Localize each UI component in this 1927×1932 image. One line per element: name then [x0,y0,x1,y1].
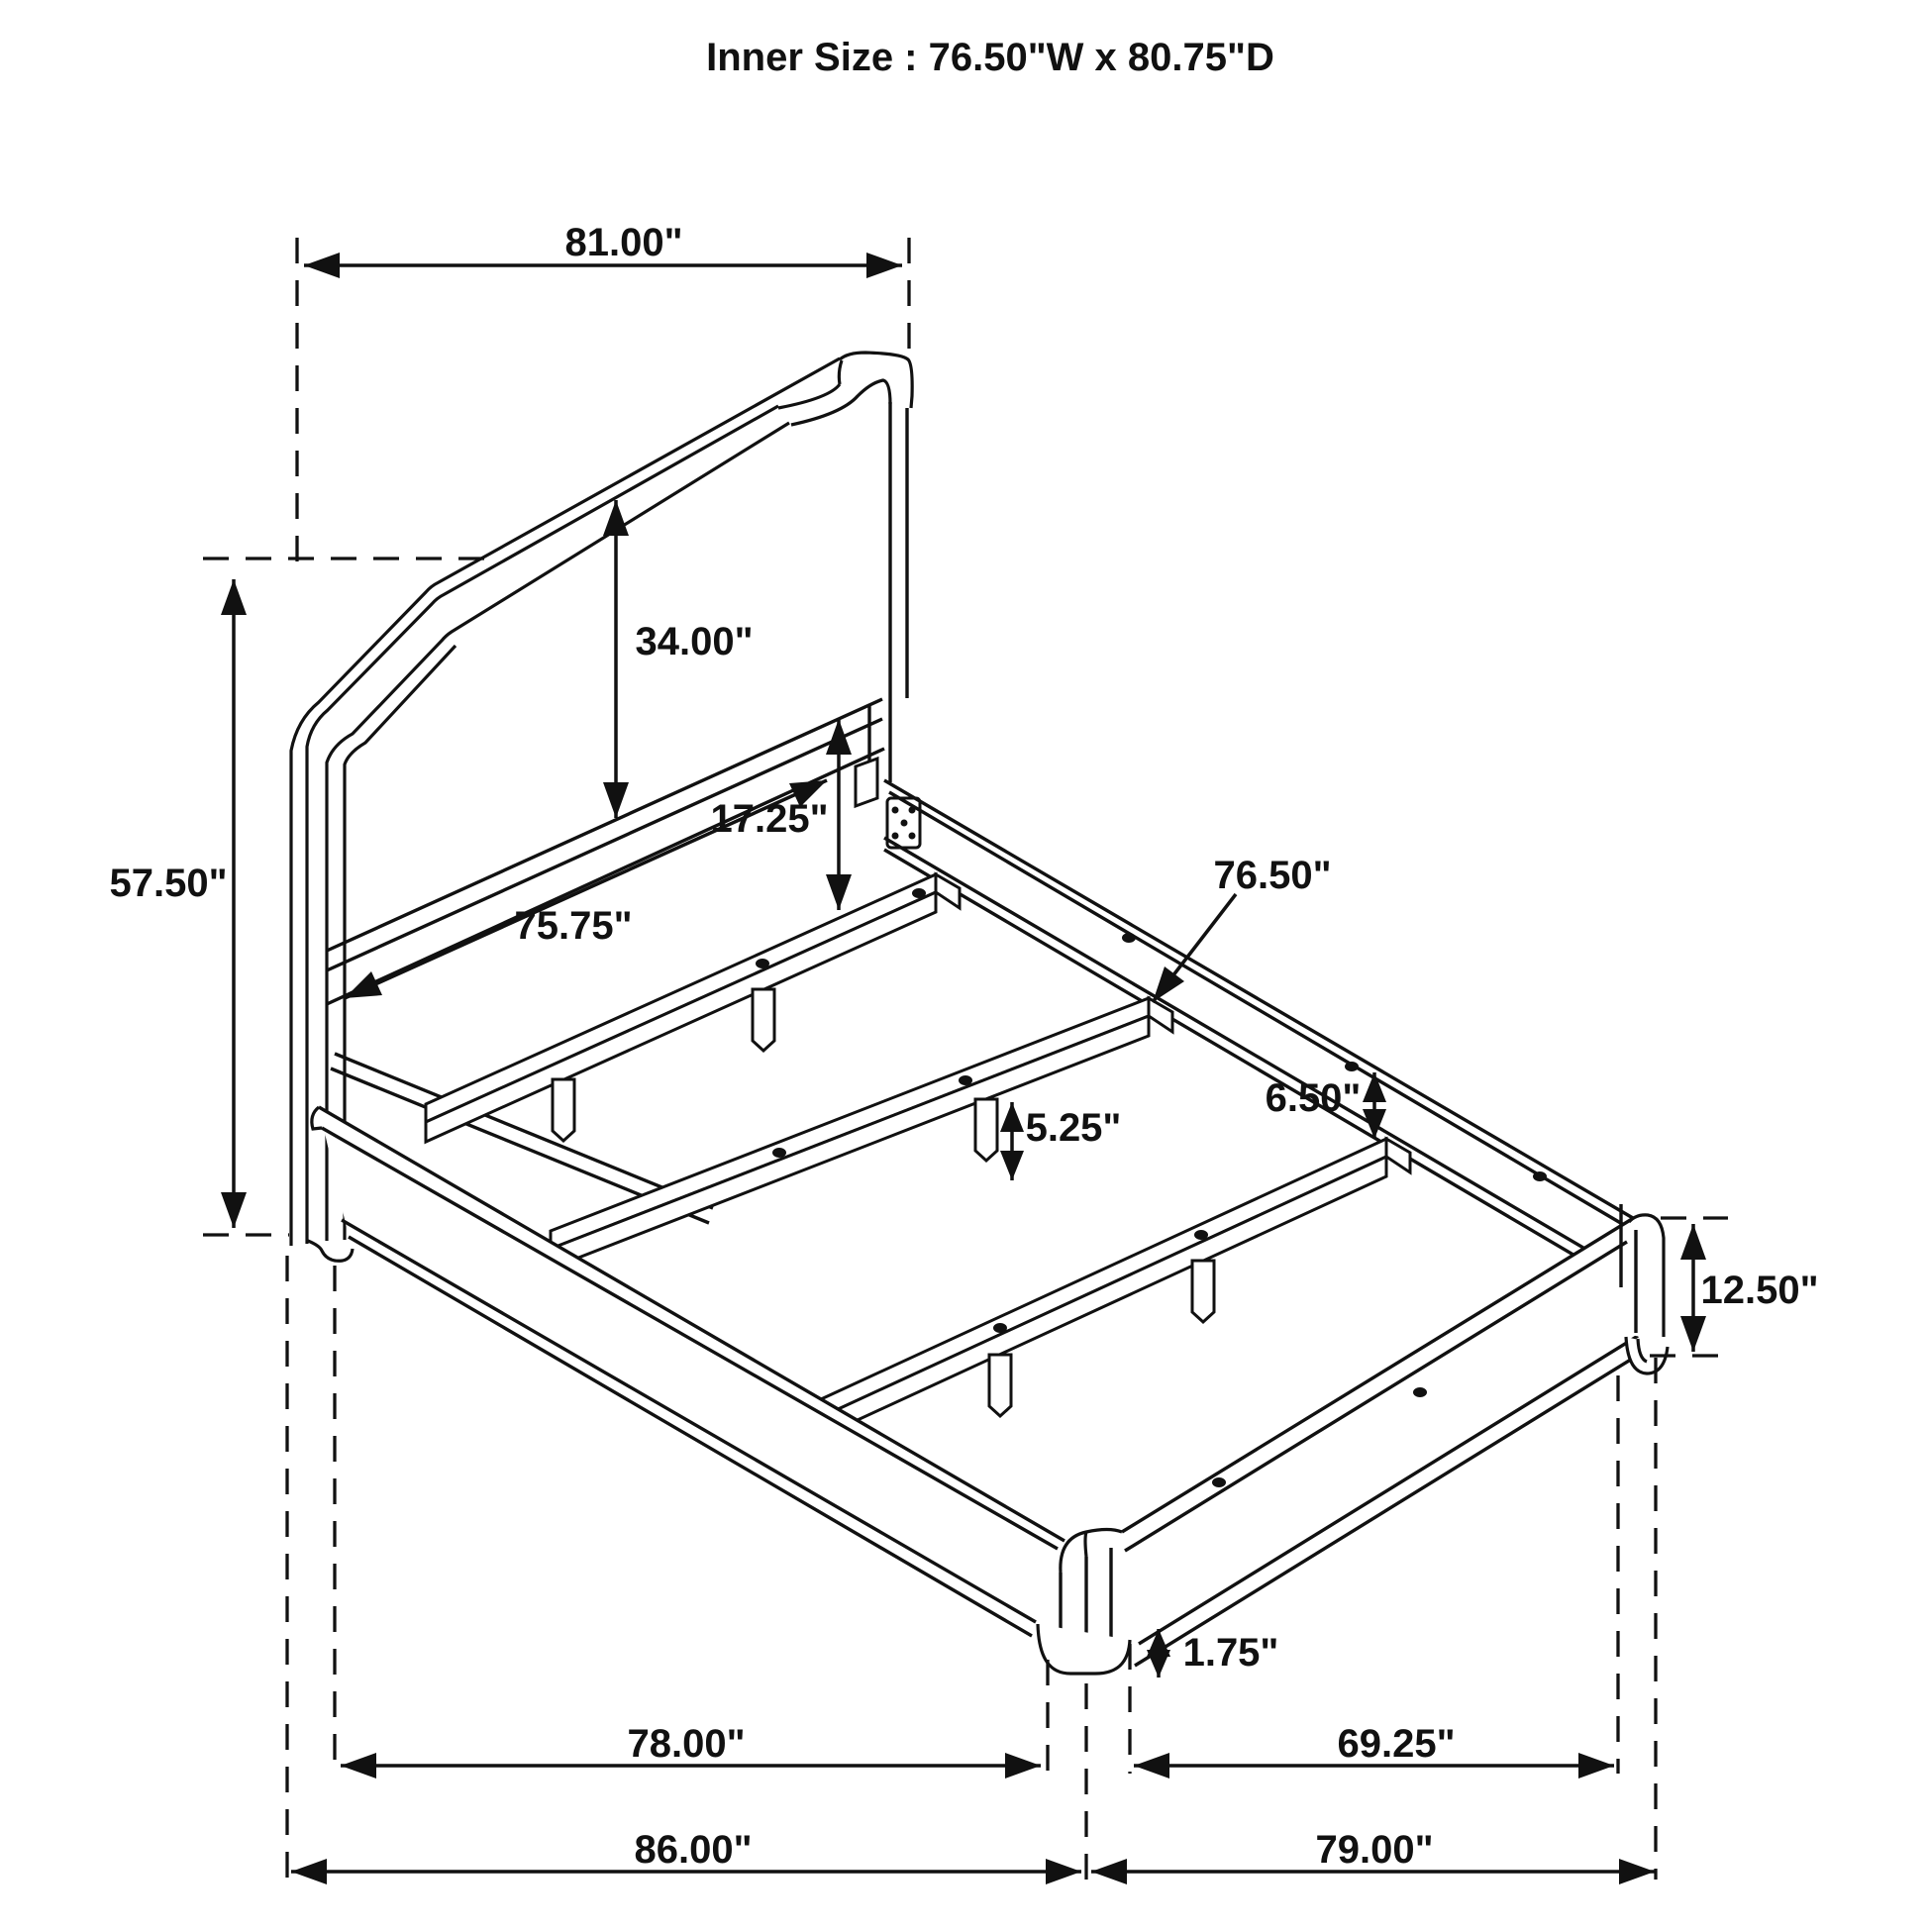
svg-text:78.00": 78.00" [627,1722,745,1766]
svg-text:6.50": 6.50" [1266,1076,1362,1120]
svg-text:17.25": 17.25" [710,797,828,841]
svg-text:86.00": 86.00" [634,1828,752,1872]
svg-text:12.50": 12.50" [1700,1269,1818,1312]
svg-text:75.75": 75.75" [514,904,632,948]
svg-text:79.00": 79.00" [1315,1828,1433,1872]
svg-text:76.50": 76.50" [1213,854,1331,897]
svg-text:69.25": 69.25" [1337,1722,1455,1766]
svg-text:81.00": 81.00" [564,221,682,264]
svg-text:Inner Size : 76.50"W x 80.75"D: Inner Size : 76.50"W x 80.75"D [706,36,1274,79]
svg-text:1.75": 1.75" [1183,1631,1279,1675]
svg-text:57.50": 57.50" [109,862,227,905]
svg-text:5.25": 5.25" [1026,1106,1122,1150]
svg-text:34.00": 34.00" [635,620,753,663]
